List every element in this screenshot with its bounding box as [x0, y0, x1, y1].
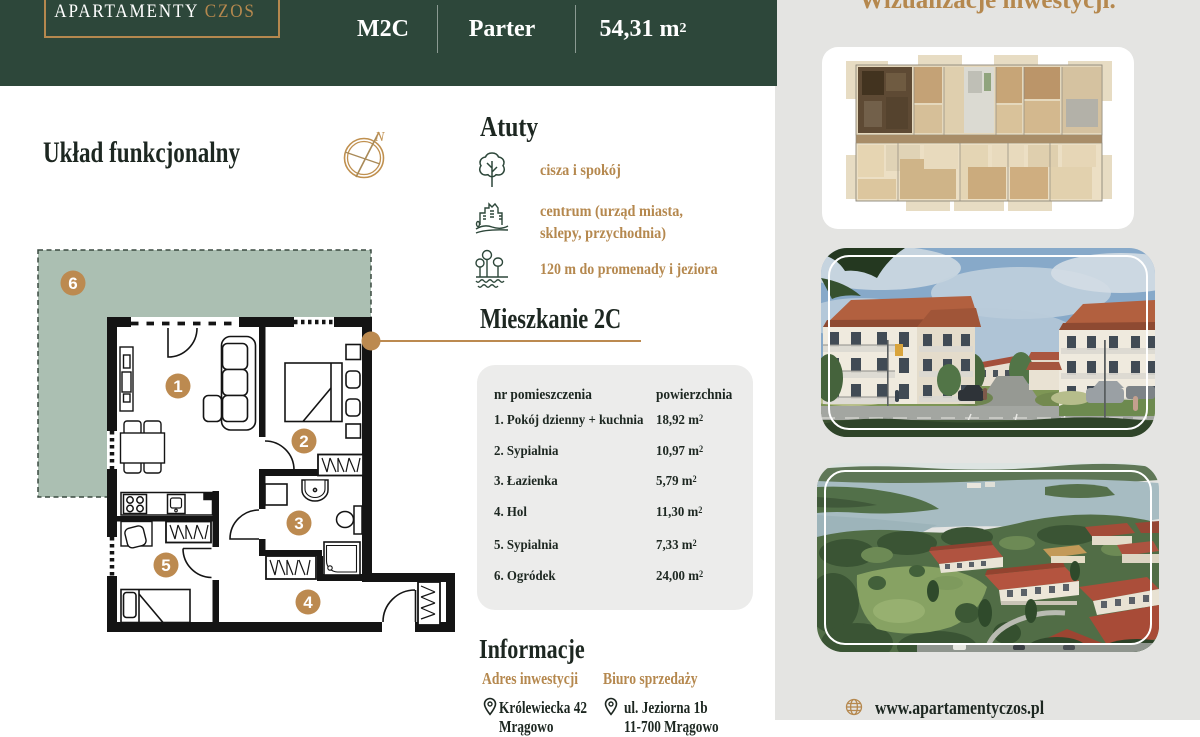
svg-text:4: 4 [303, 593, 313, 612]
svg-text:1: 1 [173, 377, 182, 396]
svg-text:3: 3 [294, 514, 303, 533]
svg-text:2: 2 [299, 432, 308, 451]
svg-text:5: 5 [161, 556, 170, 575]
svg-text:N: N [374, 130, 385, 145]
svg-text:6: 6 [68, 274, 77, 293]
